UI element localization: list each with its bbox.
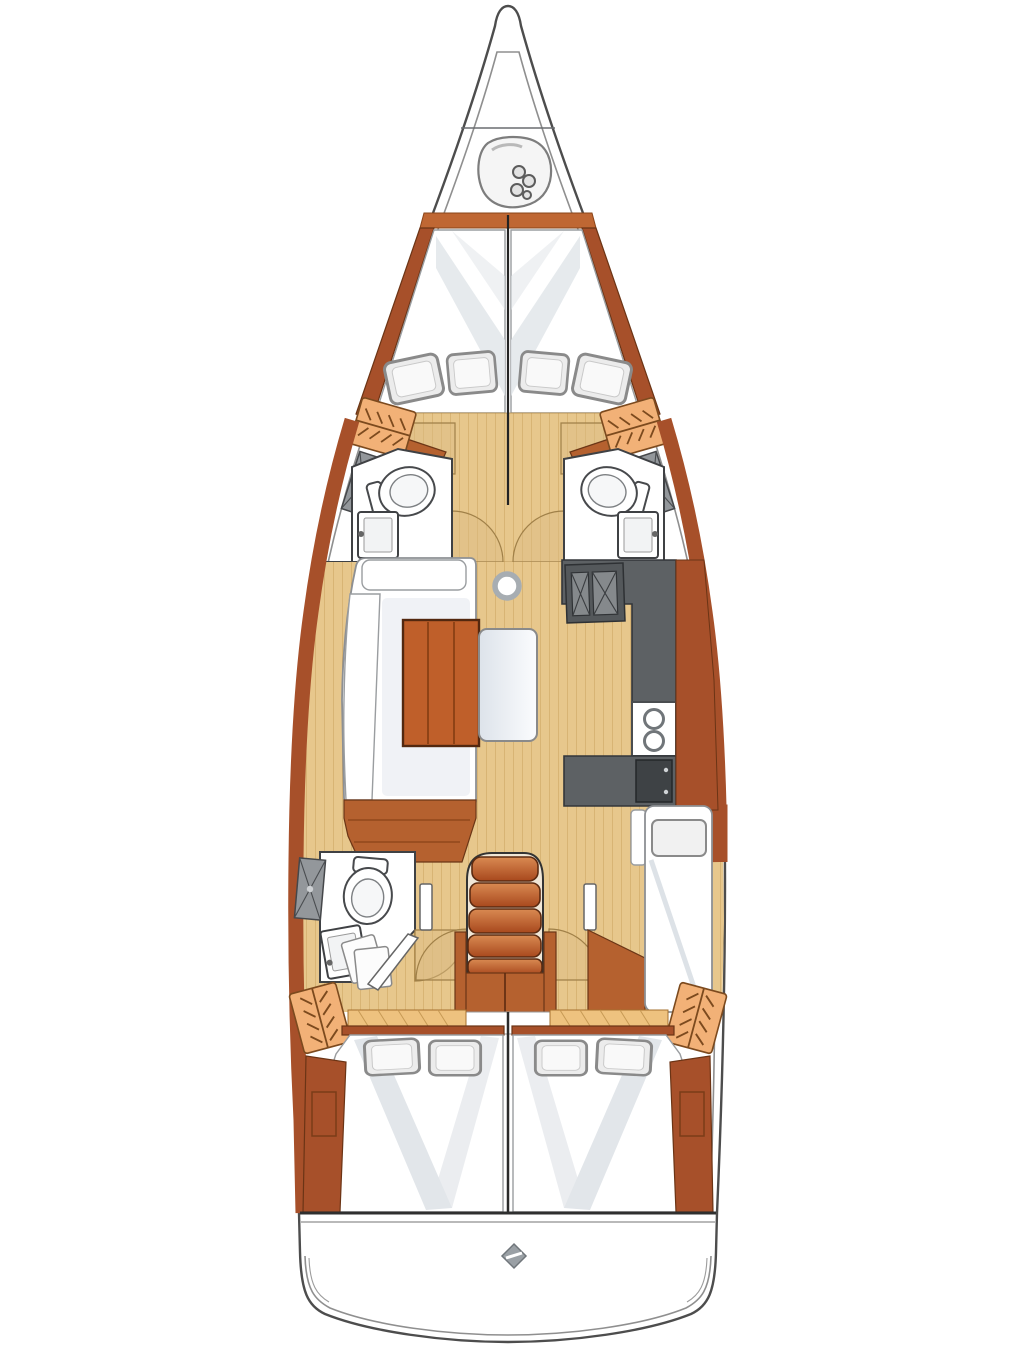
sink-icon — [618, 512, 658, 558]
pillow-icon — [535, 1041, 586, 1075]
door-leaf — [584, 884, 596, 930]
stair-rail-starboard — [544, 932, 556, 1020]
aft-trim-port — [342, 1026, 504, 1035]
aft-side-panel-starboard — [670, 1056, 713, 1212]
pillow-icon — [652, 820, 706, 856]
table-leaf — [479, 629, 537, 741]
pillow-icon — [519, 351, 570, 395]
saloon-table — [403, 620, 537, 746]
mast-icon — [495, 574, 519, 598]
aft-trim-starboard — [512, 1026, 674, 1035]
settee-back-cushion-top — [362, 560, 466, 590]
pillow-icon — [364, 1038, 420, 1075]
pillow-icon — [447, 351, 498, 395]
companionway-steps — [468, 857, 542, 975]
pillow-icon — [596, 1038, 652, 1075]
berth-side-board — [631, 810, 646, 865]
aft-cabins — [303, 1010, 713, 1212]
door-leaf — [420, 884, 432, 930]
pillow-icon — [571, 353, 633, 405]
fridge — [636, 760, 672, 802]
double-sink-icon — [565, 563, 625, 623]
aft-side-panel-port — [303, 1056, 346, 1212]
fridge-handle-dot — [664, 768, 668, 772]
galley-hull-cabinet — [676, 560, 718, 810]
burner-icon — [645, 710, 664, 729]
pillow-icon — [383, 353, 445, 405]
hatch-panel-icon — [294, 858, 325, 920]
pillow-icon — [429, 1041, 480, 1075]
stair-rail-port — [455, 932, 466, 1020]
boat-floor-plan — [0, 0, 1024, 1365]
sink-icon — [358, 512, 398, 558]
burner-icon — [645, 732, 664, 751]
floor-plan-canvas — [0, 0, 1024, 1365]
fridge-handle-dot — [664, 790, 668, 794]
